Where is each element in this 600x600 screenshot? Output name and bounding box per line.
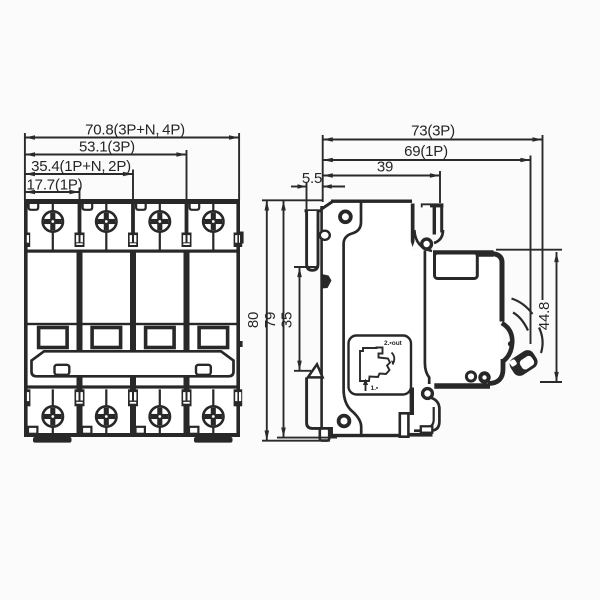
svg-text:79: 79 [262, 312, 279, 328]
svg-text:1.▪: 1.▪ [371, 385, 379, 392]
svg-text:17.7(1P): 17.7(1P) [27, 177, 83, 194]
svg-text:80: 80 [245, 312, 262, 328]
svg-text:44.8: 44.8 [536, 302, 553, 330]
svg-text:53.1(3P): 53.1(3P) [79, 139, 135, 156]
svg-text:5.5: 5.5 [302, 170, 322, 187]
svg-text:35: 35 [279, 312, 296, 328]
svg-text:39: 39 [377, 159, 393, 176]
svg-text:2.▪out: 2.▪out [384, 340, 403, 347]
svg-text:70.8(3P+N, 4P): 70.8(3P+N, 4P) [85, 122, 185, 139]
svg-text:35.4(1P+N, 2P): 35.4(1P+N, 2P) [31, 158, 131, 175]
svg-text:69(1P): 69(1P) [404, 143, 448, 160]
svg-text:73(3P): 73(3P) [411, 123, 455, 140]
